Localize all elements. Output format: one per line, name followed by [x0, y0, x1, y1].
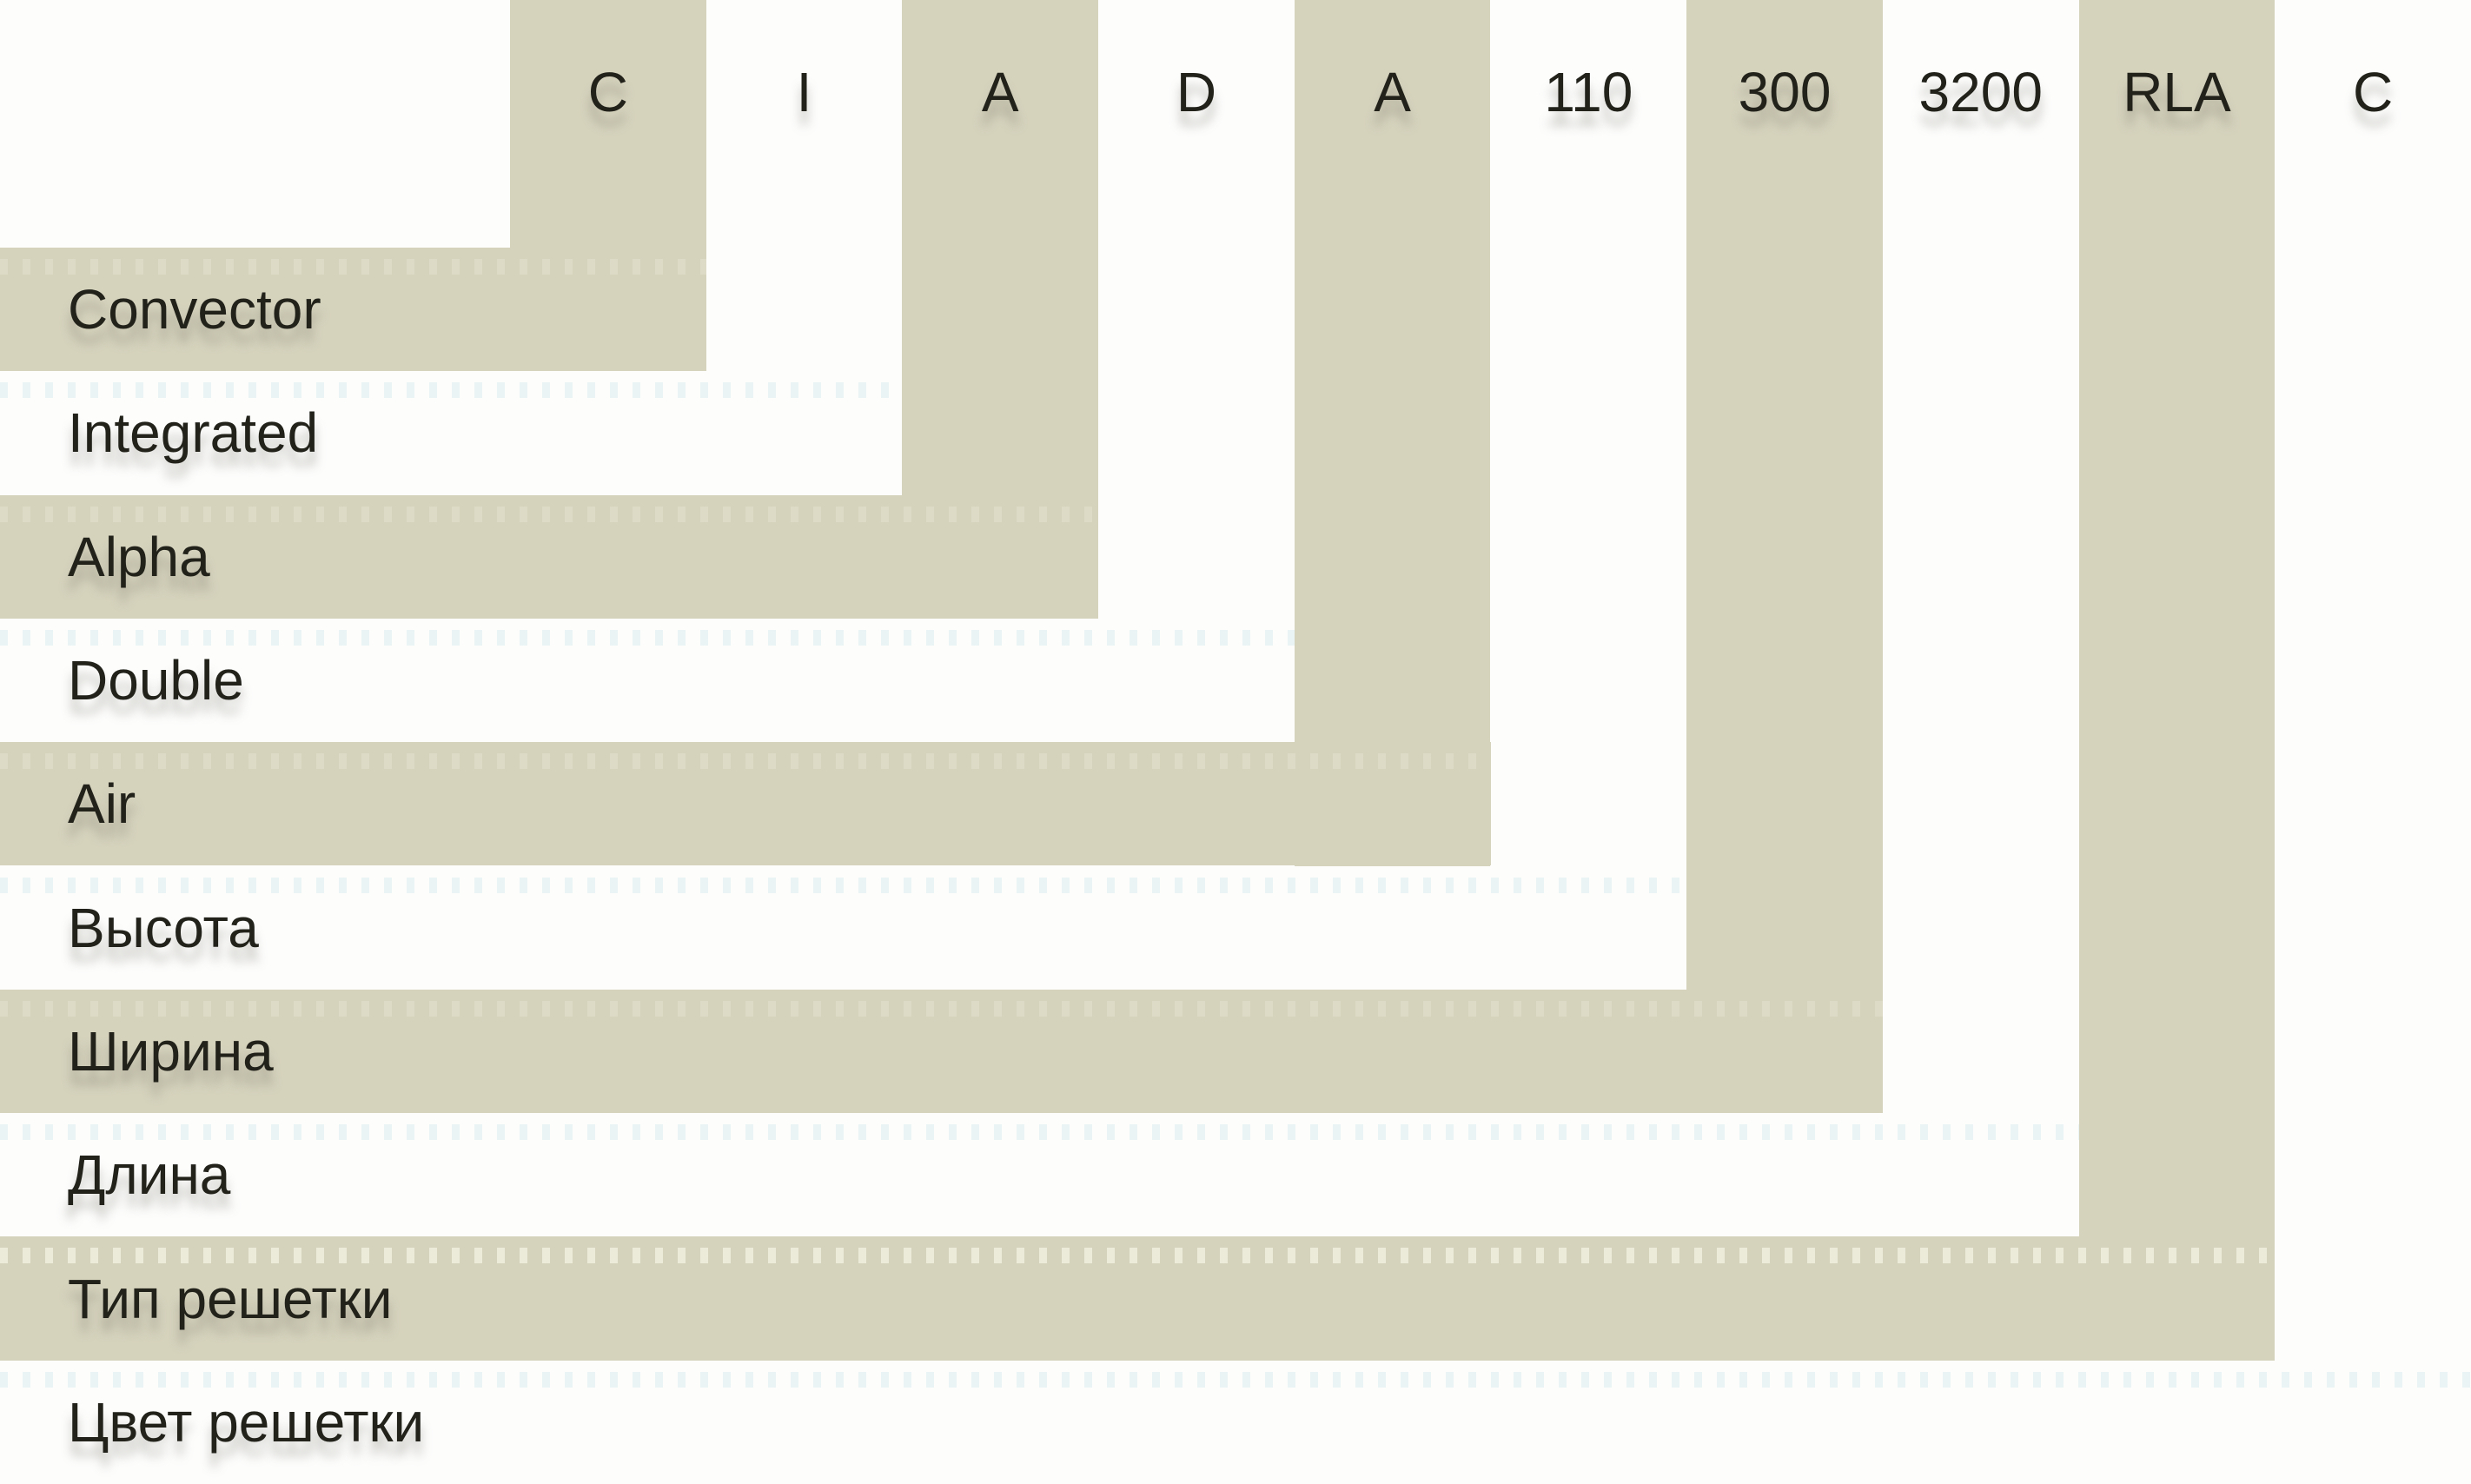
column-bar-a [1295, 0, 1491, 866]
column-bar-rla [2079, 0, 2276, 1361]
row-label-2: Integrated [0, 371, 902, 494]
column-bar-110 [1491, 0, 1687, 990]
row-label-7: Ширина [0, 990, 1883, 1113]
row-label-10: Цвет решетки [0, 1361, 2471, 1484]
row-label-6: Высота [0, 866, 1686, 990]
column-bar-3200 [1883, 0, 2079, 1236]
code-label-7: 300 [1686, 64, 1883, 120]
code-label-1: C [510, 64, 706, 120]
code-label-6: 110 [1491, 64, 1687, 120]
code-label-9: RLA [2079, 64, 2276, 120]
code-label-10: C [2275, 64, 2471, 120]
row-label-9: Тип решетки [0, 1236, 2275, 1360]
code-label-5: A [1295, 64, 1491, 120]
code-label-3: A [902, 64, 1098, 120]
row-label-3: Alpha [0, 495, 1098, 619]
row-label-8: Длина [0, 1113, 2079, 1236]
row-label-5: Air [0, 742, 1491, 865]
nomenclature-diagram: CConvectorIIntegratedAAlphaDDoubleAAir11… [0, 0, 2471, 1484]
code-label-4: D [1098, 64, 1295, 120]
column-bar-c [2275, 0, 2471, 1484]
code-label-8: 3200 [1883, 64, 2079, 120]
code-label-2: I [706, 64, 903, 120]
row-label-4: Double [0, 619, 1295, 742]
column-bar-300 [1686, 0, 1883, 1113]
row-label-1: Convector [0, 248, 706, 371]
